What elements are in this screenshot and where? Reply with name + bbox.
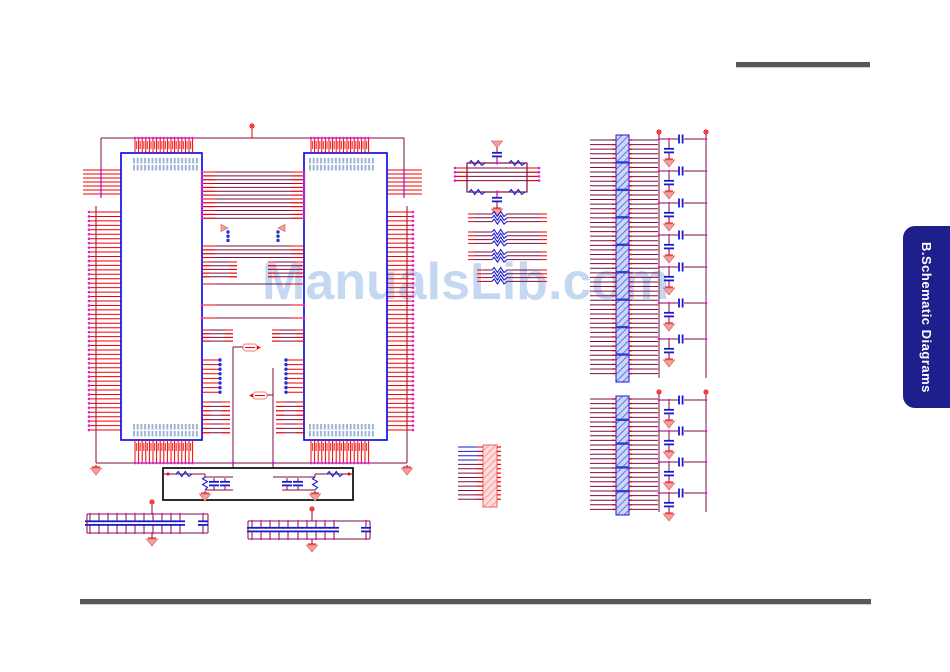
schematic-canvas [0, 0, 950, 672]
section-tab-schematic-diagrams[interactable]: B.Schematic Diagrams [903, 226, 950, 408]
manual-page: ManualsLib.com B.Schematic Diagrams [0, 0, 950, 672]
section-tab-label: B.Schematic Diagrams [919, 242, 934, 393]
